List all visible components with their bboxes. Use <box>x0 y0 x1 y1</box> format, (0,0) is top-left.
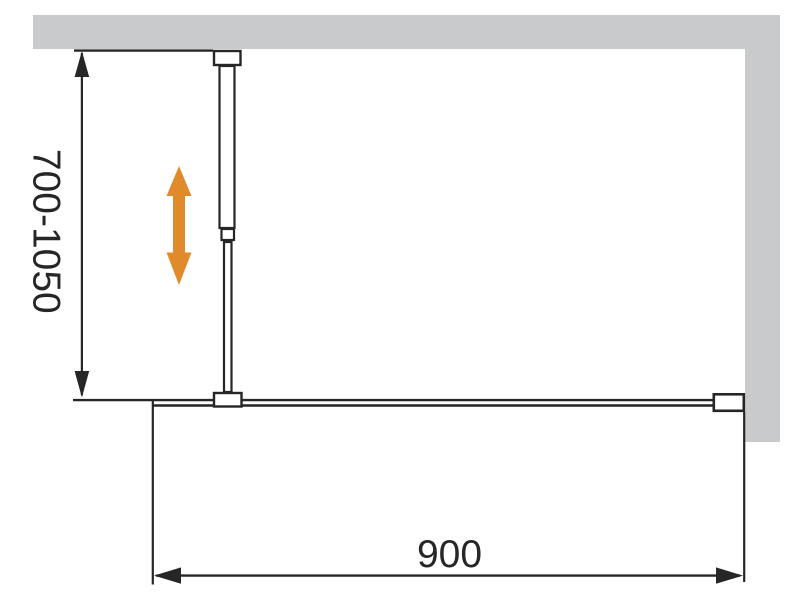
svg-text:900: 900 <box>417 533 482 576</box>
svg-text:700-1050: 700-1050 <box>25 149 68 314</box>
